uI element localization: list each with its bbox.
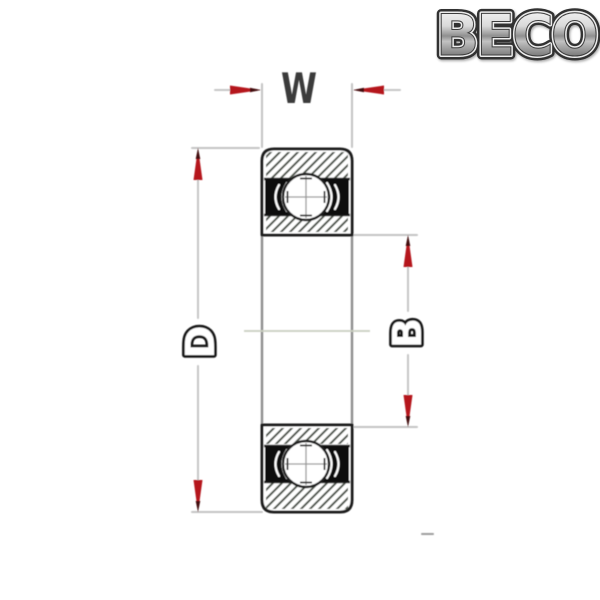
bearing-technical-drawing: W D B <box>0 0 600 600</box>
width-left-arrow-tip <box>250 88 261 92</box>
bore-top-arrow-tip <box>406 235 411 246</box>
bore-bottom-arrow-tip <box>406 416 411 427</box>
outer-diameter-bottom-arrow-tip <box>196 501 201 512</box>
diagram-body: W D B <box>178 64 433 534</box>
outer-diameter-top-arrow-tip <box>196 148 201 159</box>
dimension-outer-diameter: D <box>178 148 262 512</box>
logo-text: BECO <box>436 3 597 69</box>
bottom-ball <box>283 441 329 487</box>
dimension-width: W <box>215 64 400 147</box>
outer-diameter-label: D <box>178 325 224 358</box>
beco-logo: BECO BECO BECO <box>436 3 597 69</box>
top-ball <box>283 174 329 220</box>
bearing-bottom-section <box>262 425 352 512</box>
bearing-bore <box>244 236 370 424</box>
width-right-arrow-tip <box>353 88 364 92</box>
width-label: W <box>281 64 317 113</box>
bearing-top-section <box>262 149 352 235</box>
bearing-drawing-page: W D B <box>0 0 600 600</box>
bore-label: B <box>385 318 431 349</box>
